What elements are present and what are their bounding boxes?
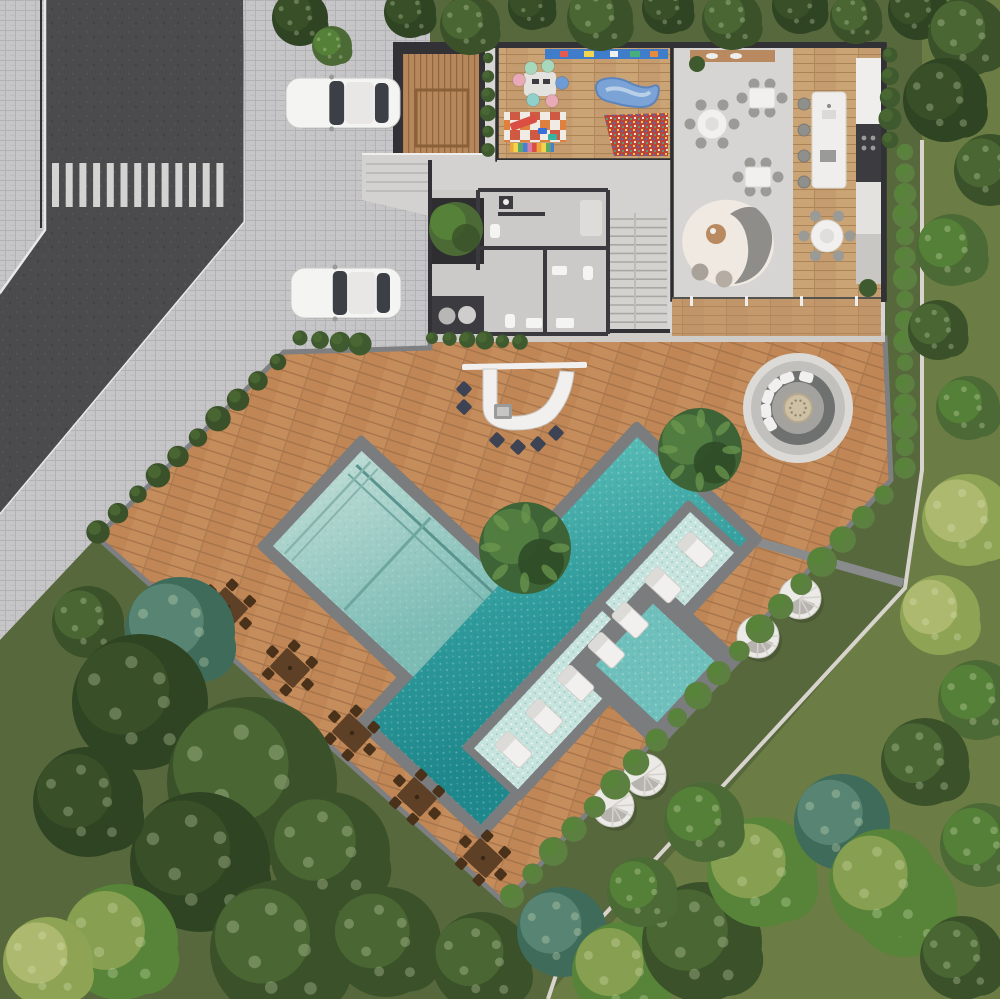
- palm-frond: [697, 409, 705, 428]
- crosswalk-stripe: [134, 163, 141, 207]
- crosswalk-stripe: [52, 163, 59, 207]
- crosswalk-stripe: [107, 163, 114, 207]
- palm-frond: [549, 543, 569, 552]
- fire-table: [784, 394, 812, 422]
- dryer: [458, 306, 476, 324]
- courtyard-tree: [429, 202, 483, 256]
- island-faucet: [827, 104, 831, 108]
- house-wall-left: [428, 160, 432, 338]
- palm-frond: [722, 446, 740, 454]
- chair: [833, 250, 844, 261]
- chair: [810, 211, 821, 222]
- pool-plant: [479, 502, 571, 594]
- staircase: [600, 213, 670, 333]
- kitchen-wall-counters: [856, 58, 881, 284]
- console-bowl-1: [706, 53, 718, 59]
- kitchen-plant: [859, 279, 877, 297]
- car-mirror: [333, 317, 338, 322]
- chair: [729, 119, 740, 130]
- chair: [773, 172, 784, 183]
- toy-car-teal: [548, 134, 557, 140]
- kitchen-stool: [798, 176, 810, 188]
- crosswalk-stripe: [79, 163, 86, 207]
- site-plan-render: [0, 0, 1000, 999]
- car-windshield: [333, 271, 347, 315]
- crosswalk-stripe: [216, 163, 223, 207]
- chair: [799, 231, 810, 242]
- house: [362, 42, 886, 342]
- palm-frond: [480, 543, 500, 552]
- chair: [696, 138, 707, 149]
- fire-pit-cushion: [761, 403, 772, 418]
- coffee-table-decor: [710, 228, 716, 234]
- play-pouf: [546, 95, 559, 108]
- car-rear-window: [377, 273, 390, 313]
- play-pouf: [542, 60, 555, 73]
- table-rect: [749, 88, 775, 108]
- tree: [936, 376, 1000, 440]
- play-pouf: [527, 94, 540, 107]
- lounge-coffee-table: [706, 224, 726, 244]
- kitchen-stool: [798, 150, 810, 162]
- car-roof: [348, 272, 376, 314]
- palm-frond: [659, 445, 677, 453]
- chair: [810, 250, 821, 261]
- play-pouf: [513, 74, 526, 87]
- lounge-pouf-2: [716, 271, 733, 288]
- ball-pit: [604, 113, 668, 156]
- lounge-pouf-1: [692, 264, 709, 281]
- pool-plant: [658, 408, 742, 492]
- palm-frond: [521, 503, 530, 523]
- crosswalk-stripe: [203, 163, 210, 207]
- car-roof: [345, 82, 374, 124]
- chair: [685, 119, 696, 130]
- console-bowl-2: [730, 53, 742, 59]
- table-rect: [745, 167, 771, 187]
- washer: [439, 308, 456, 325]
- island-sink: [822, 110, 836, 119]
- play-table: [524, 72, 556, 96]
- playroom: [497, 44, 672, 160]
- crosswalk-stripe: [66, 163, 73, 207]
- crosswalk-stripe: [121, 163, 128, 207]
- car-windshield: [329, 81, 344, 125]
- dining-kitchen-wing: [672, 44, 885, 300]
- kitchen-stool: [798, 124, 810, 136]
- car-mirror: [333, 265, 338, 270]
- toy-car-blue: [538, 128, 547, 134]
- island-cooktop: [820, 150, 836, 162]
- crosswalk-stripe: [189, 163, 196, 207]
- chair: [696, 99, 707, 110]
- striped-bench: [510, 143, 554, 152]
- car-mirror: [329, 127, 334, 132]
- play-table-item-2: [543, 79, 550, 84]
- bar-grill-top: [497, 407, 509, 416]
- fire-pit-lounge: [743, 353, 853, 463]
- chair: [733, 172, 744, 183]
- play-table-item-1: [532, 79, 539, 84]
- covered-terrace: [672, 296, 881, 336]
- play-pouf: [556, 77, 569, 90]
- terrace-wood-grain: [672, 298, 881, 336]
- chair: [718, 138, 729, 149]
- palm-frond: [696, 472, 704, 490]
- chair: [718, 99, 729, 110]
- crosswalk-stripe: [175, 163, 182, 207]
- palm-frond: [520, 572, 529, 592]
- play-pouf: [525, 62, 538, 75]
- car-rear-window: [375, 83, 389, 123]
- crosswalk-stripe: [148, 163, 155, 207]
- dining-plant: [689, 56, 705, 72]
- car-mirror: [329, 75, 334, 80]
- car: [286, 75, 400, 132]
- site-plan-canvas: [0, 0, 1000, 999]
- kitchen-stool: [798, 98, 810, 110]
- crosswalk-stripe: [162, 163, 169, 207]
- chair: [845, 231, 856, 242]
- chair: [777, 93, 788, 104]
- chair: [833, 211, 844, 222]
- stair-wall-bottom: [600, 329, 670, 333]
- car: [291, 265, 401, 322]
- chair: [737, 93, 748, 104]
- carport: [393, 46, 485, 160]
- crosswalk-stripe: [93, 163, 100, 207]
